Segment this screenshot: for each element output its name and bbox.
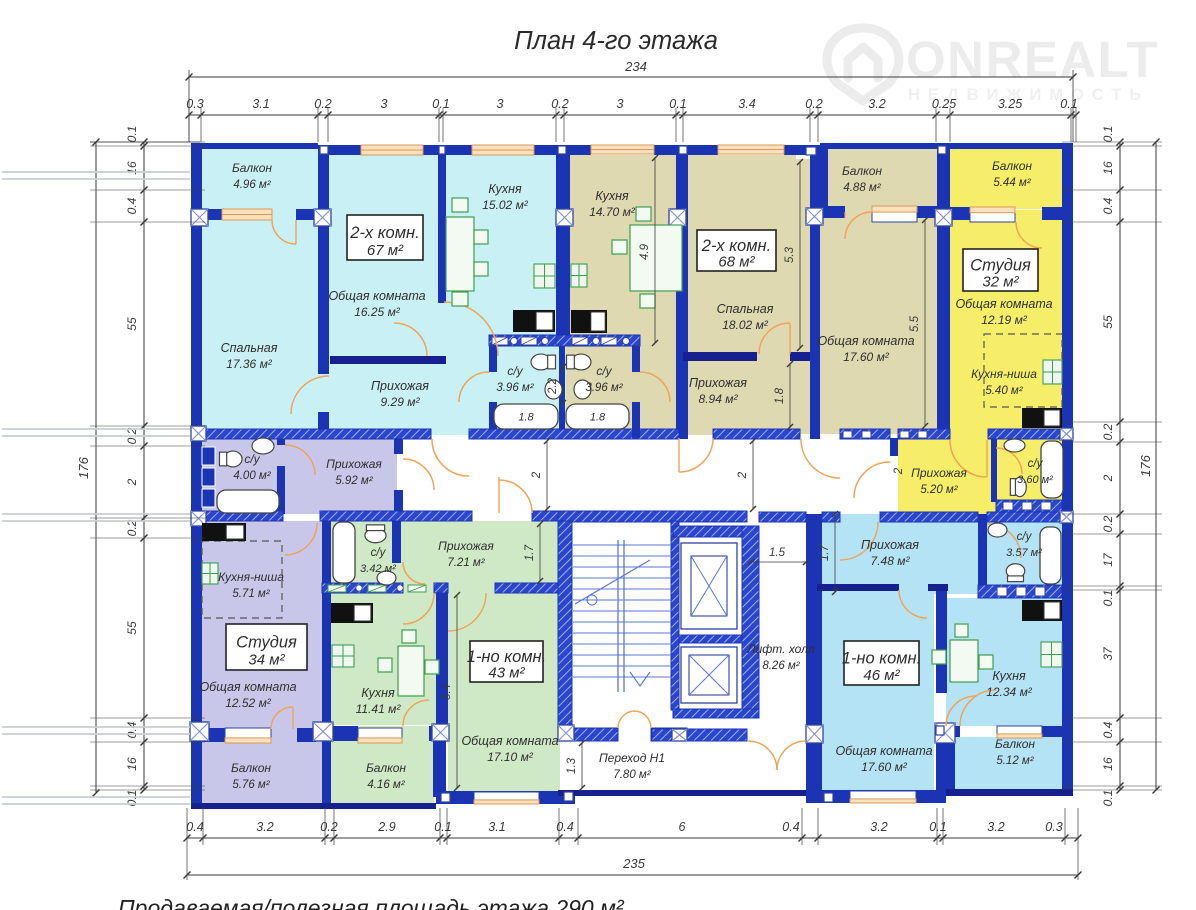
svg-text:3.57 м²: 3.57 м² bbox=[1006, 547, 1042, 559]
svg-text:с/у: с/у bbox=[507, 364, 523, 378]
svg-text:14.70 м²: 14.70 м² bbox=[589, 205, 636, 219]
svg-text:5.3: 5.3 bbox=[784, 246, 796, 263]
svg-text:Общая комната: Общая комната bbox=[199, 680, 296, 694]
svg-text:235: 235 bbox=[622, 856, 645, 871]
svg-text:0.4: 0.4 bbox=[125, 197, 139, 214]
svg-text:1.8: 1.8 bbox=[518, 412, 534, 424]
svg-text:2: 2 bbox=[531, 471, 543, 479]
svg-text:1-но комн.: 1-но комн. bbox=[842, 649, 921, 667]
svg-text:Студия: Студия bbox=[236, 633, 297, 651]
svg-text:11.41 м²: 11.41 м² bbox=[356, 702, 402, 716]
svg-text:17.36 м²: 17.36 м² bbox=[226, 357, 273, 371]
svg-text:7.21 м²: 7.21 м² bbox=[447, 557, 485, 569]
svg-text:Кухня: Кухня bbox=[595, 189, 629, 203]
svg-text:5.71 м²: 5.71 м² bbox=[232, 588, 270, 600]
svg-text:3: 3 bbox=[617, 97, 624, 111]
svg-text:55: 55 bbox=[125, 317, 139, 331]
svg-text:0.4: 0.4 bbox=[186, 820, 203, 834]
svg-text:Балкон: Балкон bbox=[992, 159, 1032, 173]
svg-text:37: 37 bbox=[1101, 646, 1115, 661]
svg-text:с/у: с/у bbox=[244, 452, 260, 466]
svg-text:0.4: 0.4 bbox=[556, 820, 573, 834]
svg-text:Балкон: Балкон bbox=[995, 737, 1035, 751]
svg-text:32 м²: 32 м² bbox=[982, 273, 1019, 290]
svg-text:46 м²: 46 м² bbox=[863, 667, 900, 684]
svg-text:Кухня-ниша: Кухня-ниша bbox=[218, 570, 284, 584]
svg-text:2: 2 bbox=[737, 471, 749, 479]
svg-text:1.7: 1.7 bbox=[819, 544, 831, 561]
svg-text:Общая комната: Общая комната bbox=[461, 734, 558, 748]
svg-text:0.2: 0.2 bbox=[551, 97, 568, 111]
svg-text:17.10 м²: 17.10 м² bbox=[487, 750, 534, 764]
svg-text:Балкон: Балкон bbox=[231, 761, 271, 775]
svg-text:ONREALT: ONREALT bbox=[906, 31, 1159, 88]
svg-text:17: 17 bbox=[1101, 552, 1115, 567]
svg-text:Студия: Студия bbox=[970, 257, 1031, 275]
svg-text:Общая комната: Общая комната bbox=[835, 744, 932, 758]
svg-text:3.25: 3.25 bbox=[998, 97, 1022, 111]
svg-text:0.3: 0.3 bbox=[1045, 820, 1062, 834]
svg-text:0.2: 0.2 bbox=[1101, 423, 1115, 440]
svg-text:Кухня: Кухня bbox=[361, 686, 395, 700]
svg-text:16: 16 bbox=[125, 757, 139, 771]
svg-text:7.48 м²: 7.48 м² bbox=[871, 554, 911, 568]
svg-text:5.5: 5.5 bbox=[909, 315, 921, 332]
svg-text:7.80 м²: 7.80 м² bbox=[613, 769, 651, 781]
svg-text:4.96 м²: 4.96 м² bbox=[233, 179, 271, 191]
svg-text:0.25: 0.25 bbox=[932, 97, 956, 111]
svg-text:1.5: 1.5 bbox=[769, 547, 786, 559]
svg-text:6: 6 bbox=[679, 820, 686, 834]
svg-text:3: 3 bbox=[497, 97, 504, 111]
svg-text:34 м²: 34 м² bbox=[248, 652, 285, 669]
svg-text:Прихожая: Прихожая bbox=[371, 379, 429, 393]
svg-text:67 м²: 67 м² bbox=[367, 242, 404, 259]
svg-text:Общая комната: Общая комната bbox=[817, 334, 914, 348]
svg-text:Прихожая: Прихожая bbox=[911, 466, 967, 480]
svg-text:2: 2 bbox=[893, 467, 905, 475]
svg-text:Продаваемая/полезная площадь э: Продаваемая/полезная площадь этажа 290 м… bbox=[118, 895, 625, 910]
svg-text:3.1: 3.1 bbox=[488, 820, 505, 834]
svg-text:Прихожая: Прихожая bbox=[326, 457, 382, 471]
svg-text:2-х комн.: 2-х комн. bbox=[349, 224, 419, 242]
svg-text:3.96 м²: 3.96 м² bbox=[496, 382, 534, 394]
svg-text:2: 2 bbox=[1101, 474, 1115, 482]
svg-text:0.2: 0.2 bbox=[314, 97, 331, 111]
svg-text:12.34 м²: 12.34 м² bbox=[986, 685, 1033, 699]
svg-text:0.1: 0.1 bbox=[1101, 126, 1115, 143]
svg-text:0.4: 0.4 bbox=[125, 721, 139, 738]
svg-text:Кухня-ниша: Кухня-ниша bbox=[971, 367, 1037, 381]
svg-text:0.4: 0.4 bbox=[1101, 721, 1115, 738]
svg-text:Переход Н1: Переход Н1 bbox=[599, 751, 665, 765]
svg-text:5.76 м²: 5.76 м² bbox=[232, 779, 270, 791]
svg-text:0.2: 0.2 bbox=[1101, 515, 1115, 532]
svg-text:16.25 м²: 16.25 м² bbox=[354, 305, 401, 319]
svg-text:1.3: 1.3 bbox=[566, 757, 578, 774]
svg-text:4.16 м²: 4.16 м² bbox=[367, 779, 405, 791]
svg-text:3.4: 3.4 bbox=[738, 97, 755, 111]
svg-text:с/у: с/у bbox=[1017, 531, 1033, 543]
svg-text:0.1: 0.1 bbox=[125, 126, 139, 143]
svg-text:5.20 м²: 5.20 м² bbox=[920, 484, 958, 496]
svg-text:1.8: 1.8 bbox=[774, 387, 786, 404]
svg-text:0.3: 0.3 bbox=[186, 97, 203, 111]
svg-text:3.42 м²: 3.42 м² bbox=[360, 563, 396, 575]
svg-text:Лифт. холл: Лифт. холл bbox=[746, 642, 814, 656]
svg-text:8.26 м²: 8.26 м² bbox=[762, 660, 800, 672]
svg-text:0.1: 0.1 bbox=[929, 820, 946, 834]
svg-text:55: 55 bbox=[1101, 315, 1115, 329]
svg-text:5.44 м²: 5.44 м² bbox=[993, 177, 1031, 189]
svg-text:0.1: 0.1 bbox=[1101, 790, 1115, 807]
svg-text:5.4: 5.4 bbox=[441, 684, 453, 700]
svg-text:3.60 м²: 3.60 м² bbox=[1017, 474, 1053, 486]
svg-text:Общая комната: Общая комната bbox=[955, 297, 1052, 311]
svg-text:Балкон: Балкон bbox=[842, 164, 882, 178]
svg-text:3.2: 3.2 bbox=[868, 97, 885, 111]
svg-text:1-но комн.: 1-но комн. bbox=[467, 648, 546, 666]
svg-text:5.12 м²: 5.12 м² bbox=[996, 755, 1034, 767]
svg-text:0.2: 0.2 bbox=[320, 820, 337, 834]
svg-text:176: 176 bbox=[76, 456, 91, 478]
svg-text:12.52 м²: 12.52 м² bbox=[225, 696, 272, 710]
svg-text:0.1: 0.1 bbox=[1060, 97, 1077, 111]
svg-text:3.2: 3.2 bbox=[987, 820, 1004, 834]
svg-text:3.1: 3.1 bbox=[252, 97, 269, 111]
svg-text:Прихожая: Прихожая bbox=[861, 538, 919, 552]
svg-text:16: 16 bbox=[1101, 161, 1115, 175]
svg-text:5.40 м²: 5.40 м² bbox=[985, 385, 1023, 397]
svg-text:1.7: 1.7 bbox=[524, 544, 536, 561]
svg-text:Кухня: Кухня bbox=[488, 182, 522, 196]
svg-text:17.60 м²: 17.60 м² bbox=[861, 760, 908, 774]
svg-text:234: 234 bbox=[624, 59, 647, 74]
svg-text:2.2: 2.2 bbox=[547, 377, 559, 395]
svg-text:8.94 м²: 8.94 м² bbox=[699, 392, 739, 406]
svg-text:4.9: 4.9 bbox=[639, 243, 651, 260]
svg-text:17.60 м²: 17.60 м² bbox=[843, 350, 890, 364]
svg-text:0.1: 0.1 bbox=[1101, 590, 1115, 607]
svg-text:176: 176 bbox=[1138, 454, 1153, 476]
svg-text:12.19 м²: 12.19 м² bbox=[981, 313, 1028, 327]
svg-text:3.96 м²: 3.96 м² bbox=[585, 382, 623, 394]
svg-text:0.1: 0.1 bbox=[432, 97, 449, 111]
svg-text:Кухня: Кухня bbox=[992, 669, 1026, 683]
svg-text:1.8: 1.8 bbox=[590, 412, 606, 424]
svg-text:Прихожая: Прихожая bbox=[689, 376, 747, 390]
svg-text:15.02 м²: 15.02 м² bbox=[482, 198, 529, 212]
svg-text:0.1: 0.1 bbox=[669, 97, 686, 111]
svg-text:3: 3 bbox=[381, 97, 388, 111]
svg-text:55: 55 bbox=[125, 621, 139, 635]
svg-text:Балкон: Балкон bbox=[232, 161, 272, 175]
svg-text:4.88 м²: 4.88 м² bbox=[843, 182, 881, 194]
svg-text:5.92 м²: 5.92 м² bbox=[335, 475, 373, 487]
svg-text:2.9: 2.9 bbox=[377, 820, 395, 834]
svg-text:16: 16 bbox=[1101, 757, 1115, 771]
svg-text:с/у: с/у bbox=[596, 364, 612, 378]
svg-text:18.02 м²: 18.02 м² bbox=[722, 318, 769, 332]
svg-text:с/у: с/у bbox=[1028, 458, 1044, 470]
svg-text:3.2: 3.2 bbox=[870, 820, 887, 834]
svg-text:0.4: 0.4 bbox=[782, 820, 799, 834]
svg-text:Прихожая: Прихожая bbox=[438, 539, 494, 553]
svg-text:43 м²: 43 м² bbox=[488, 665, 525, 682]
svg-text:0.2: 0.2 bbox=[805, 97, 822, 111]
svg-text:3.2: 3.2 bbox=[256, 820, 273, 834]
svg-text:с/у: с/у bbox=[371, 547, 387, 559]
svg-text:Спальная: Спальная bbox=[221, 341, 278, 355]
svg-text:План 4-го этажа: План 4-го этажа bbox=[514, 27, 718, 55]
svg-text:2: 2 bbox=[125, 478, 139, 486]
svg-text:0.4: 0.4 bbox=[1101, 197, 1115, 214]
svg-text:Общая комната: Общая комната bbox=[328, 289, 425, 303]
svg-text:Балкон: Балкон bbox=[366, 761, 406, 775]
svg-text:4.00 м²: 4.00 м² bbox=[233, 470, 271, 482]
svg-text:68 м²: 68 м² bbox=[718, 254, 755, 271]
svg-text:2-х комн.: 2-х комн. bbox=[701, 237, 771, 255]
svg-text:Спальная: Спальная bbox=[717, 302, 774, 316]
svg-text:0.1: 0.1 bbox=[434, 820, 451, 834]
svg-text:9.29 м²: 9.29 м² bbox=[381, 395, 421, 409]
